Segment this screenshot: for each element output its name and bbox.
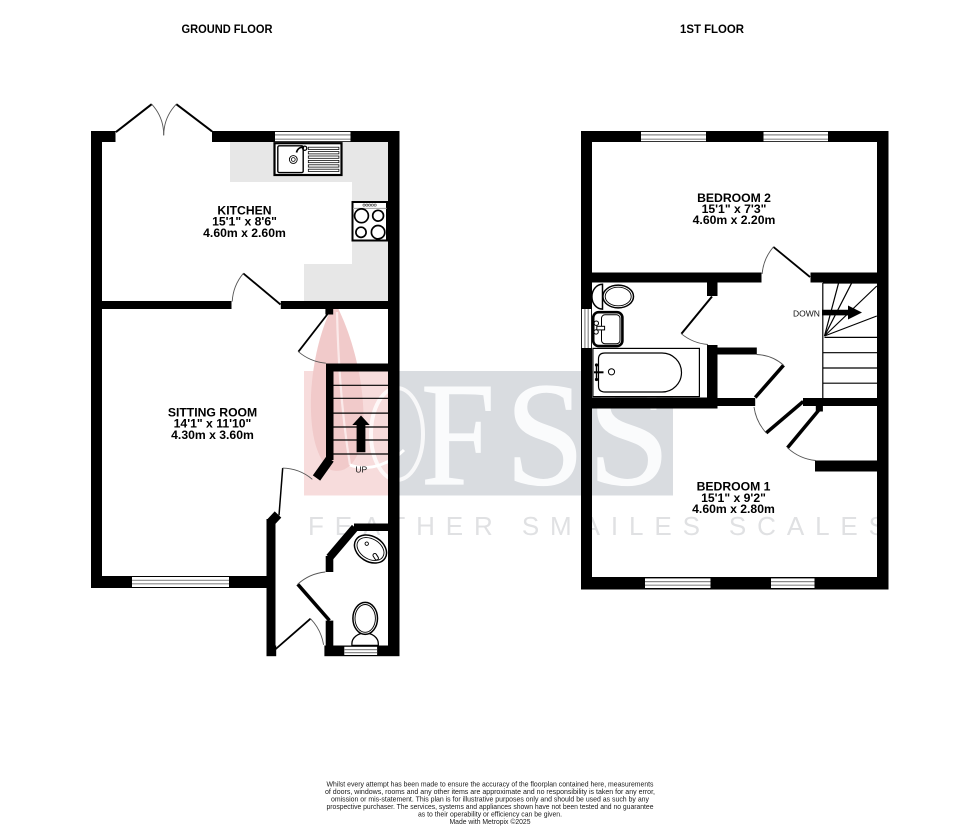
svg-text:BEDROOM 115'1" x 9'2"4.60m x: BEDROOM 115'1" x 9'2"4.60m x 2.80m bbox=[692, 480, 775, 517]
svg-text:F: F bbox=[421, 353, 495, 517]
svg-text:Made with Metropix ©2025: Made with Metropix ©2025 bbox=[450, 817, 531, 826]
svg-text:GROUND FLOOR: GROUND FLOOR bbox=[182, 22, 273, 36]
svg-text:SITTING ROOM14'1" x 11'10"4.3: SITTING ROOM14'1" x 11'10"4.30m x 3.60m bbox=[168, 405, 257, 442]
svg-text:1ST FLOOR: 1ST FLOOR bbox=[680, 22, 744, 36]
svg-text:DOWN: DOWN bbox=[793, 309, 820, 319]
svg-text:UP: UP bbox=[355, 465, 367, 475]
svg-text:S: S bbox=[506, 353, 585, 517]
svg-text:BEDROOM 215'1" x 7'3"4.60m x: BEDROOM 215'1" x 7'3"4.60m x 2.20m bbox=[693, 191, 776, 227]
